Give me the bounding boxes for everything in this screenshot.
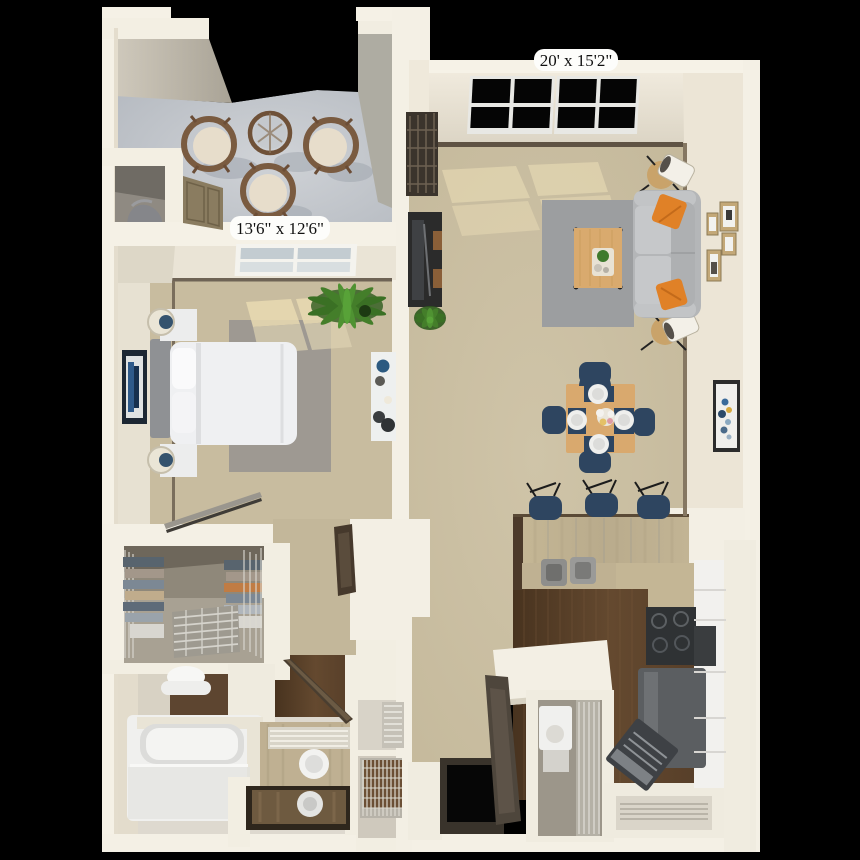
svg-text:13'6" x 12'6": 13'6" x 12'6" <box>236 219 324 238</box>
svg-text:20' x 15'2": 20' x 15'2" <box>540 51 613 70</box>
